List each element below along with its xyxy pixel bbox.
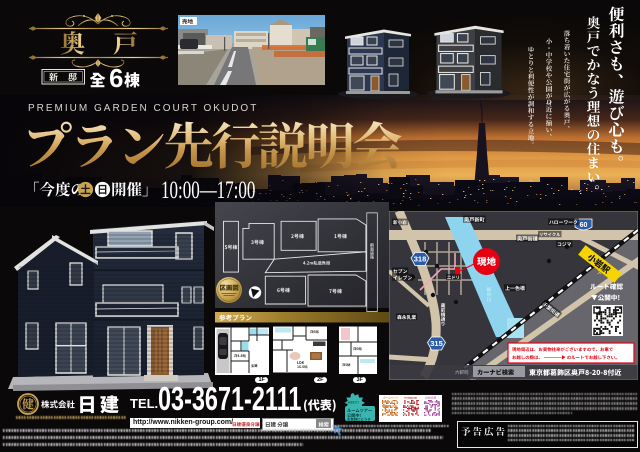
- svg-text:318: 318: [414, 255, 427, 264]
- svg-text:60: 60: [580, 222, 588, 229]
- svg-text:315: 315: [430, 339, 443, 348]
